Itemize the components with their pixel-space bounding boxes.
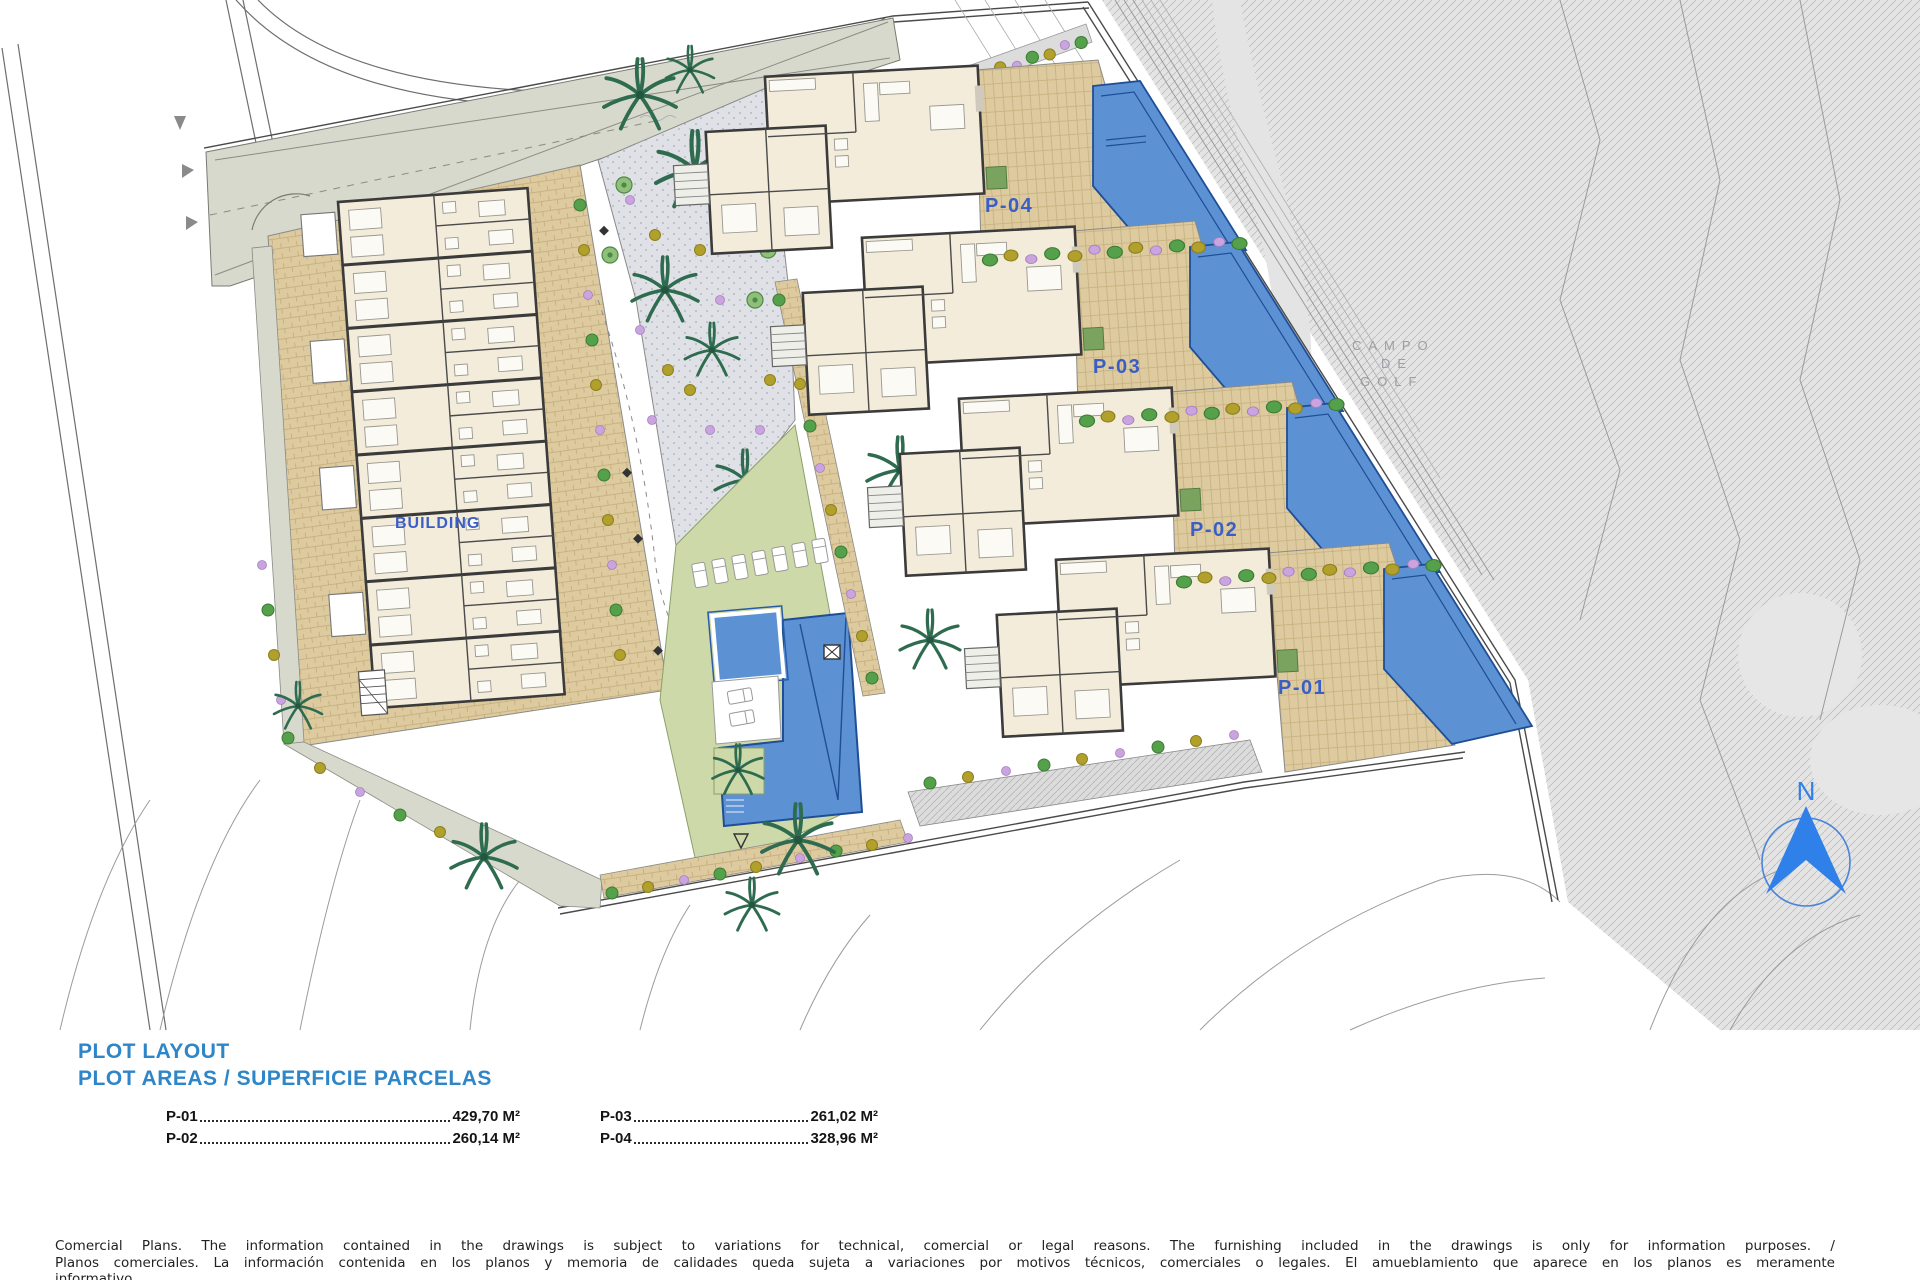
plan-canvas: .frond{stroke:#2e6b4f;stroke-width:3.2;f… <box>0 0 1920 1032</box>
plot-label-p01: P-01 <box>1278 677 1326 699</box>
golf-label-line2: DE <box>1381 356 1413 371</box>
plot-area-row: P-02 260,14 M² <box>166 1130 520 1147</box>
legend-title-1: PLOT LAYOUT <box>78 1038 878 1065</box>
plot-id: P-03 <box>600 1108 632 1125</box>
legend: PLOT LAYOUT PLOT AREAS / SUPERFICIE PARC… <box>78 1038 878 1147</box>
disclaimer-line-en: Comercial Plans. The information contain… <box>55 1238 1835 1255</box>
plot-area-row: P-04 328,96 M² <box>600 1130 878 1147</box>
plot-area-value: 328,96 M² <box>810 1130 878 1147</box>
plot-label-p03: P-03 <box>1093 356 1141 378</box>
plot-area-row: P-01 429,70 M² <box>166 1108 520 1125</box>
dotted-leader <box>634 1142 809 1144</box>
building-label: BUILDING <box>395 515 480 532</box>
central-pool <box>708 606 862 826</box>
north-label: N <box>1797 776 1816 806</box>
plot-area-value: 261,02 M² <box>810 1108 878 1125</box>
plot-id: P-01 <box>166 1108 198 1125</box>
plot-areas-table: P-01 429,70 M² P-02 260,14 M² P-03 261,0… <box>166 1108 878 1147</box>
golf-label-line3: GOLF <box>1360 374 1423 389</box>
plot-id: P-04 <box>600 1130 632 1147</box>
plot-label-p02: P-02 <box>1190 519 1238 541</box>
plot-area-value: 429,70 M² <box>452 1108 520 1125</box>
villa-p01: P-01 <box>960 543 1532 772</box>
legend-title-2: PLOT AREAS / SUPERFICIE PARCELAS <box>78 1065 878 1092</box>
golf-label-line1: CAMPO <box>1352 338 1435 353</box>
plot-id: P-02 <box>166 1130 198 1147</box>
disclaimer-line-3: informativo. <box>55 1271 1835 1280</box>
disclaimer: Comercial Plans. The information contain… <box>55 1238 1835 1280</box>
dotted-leader <box>200 1120 451 1122</box>
dotted-leader <box>200 1142 451 1144</box>
plot-area-value: 260,14 M² <box>452 1130 520 1147</box>
disclaimer-line-es: Planos comerciales. La información conte… <box>55 1255 1835 1272</box>
plot-label-p04: P-04 <box>985 195 1033 217</box>
site-plan-sheet: .frond{stroke:#2e6b4f;stroke-width:3.2;f… <box>0 0 1920 1280</box>
plot-area-row: P-03 261,02 M² <box>600 1108 878 1125</box>
dotted-leader <box>634 1120 809 1122</box>
